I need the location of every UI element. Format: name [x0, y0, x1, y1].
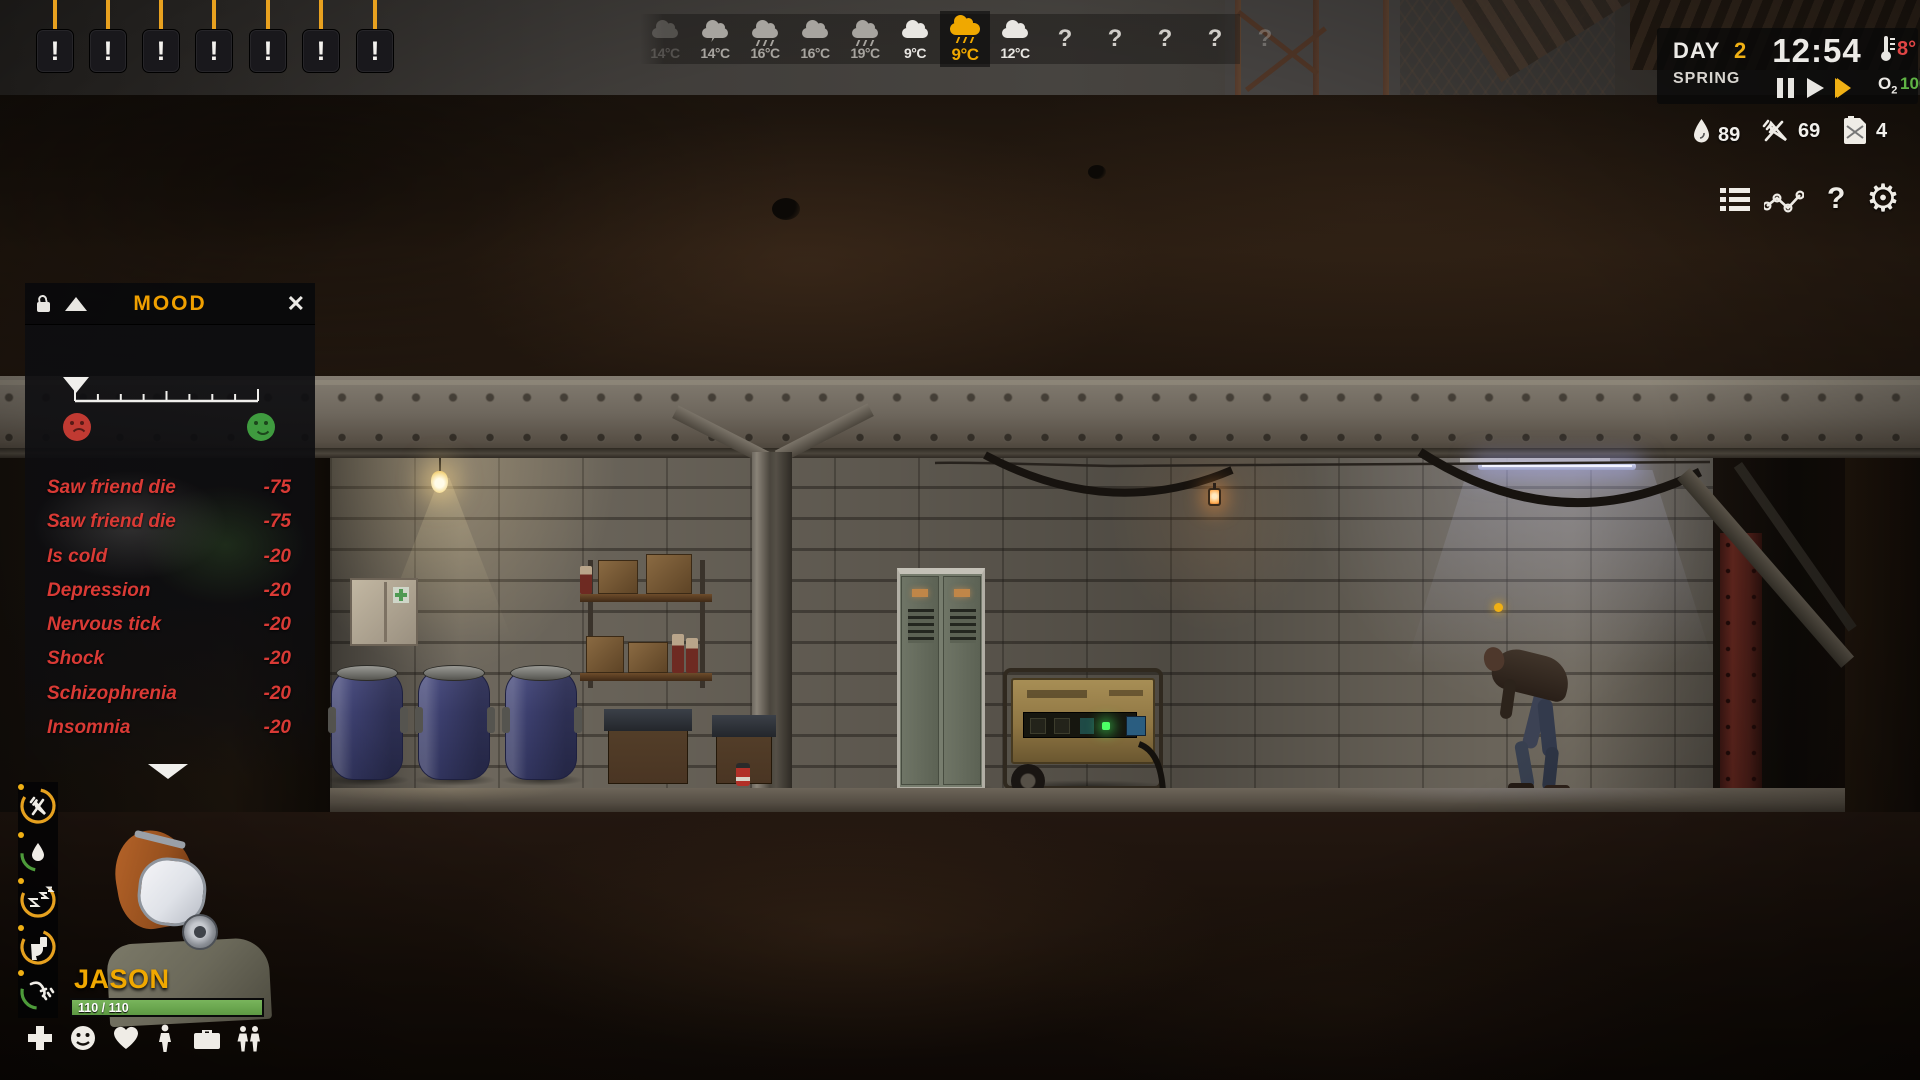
bulb-cord — [439, 458, 441, 472]
need-alert-dot — [18, 925, 24, 931]
weather-entry[interactable]: 19°C — [840, 14, 890, 64]
gas-mask-canister — [182, 914, 218, 950]
mood-item-label: Nervous tick — [47, 614, 161, 635]
cloud-icon — [902, 28, 928, 38]
need-hygiene[interactable] — [15, 969, 61, 1015]
water-barrel[interactable] — [331, 668, 403, 780]
medical-tab[interactable] — [26, 1024, 54, 1052]
water-drop-icon — [1692, 118, 1711, 144]
fork-knife-icon — [31, 798, 45, 814]
weather-entry[interactable]: 16°C — [740, 14, 790, 64]
zzz-icon — [30, 888, 52, 907]
cloud-icon — [1002, 28, 1028, 38]
mood-tab[interactable] — [69, 1024, 97, 1052]
health-value: 110 / 110 — [78, 1001, 129, 1015]
need-sleep[interactable] — [15, 877, 61, 923]
need-alert-dot — [18, 970, 24, 976]
game-screen: ! ! ! ! ! ! ! 14°C 14°C 16°C 16°C 19°C 9… — [0, 0, 1920, 1080]
fuel-resource[interactable]: 4 — [1840, 114, 1900, 154]
supply-jar[interactable] — [672, 634, 684, 673]
weather-temp: 14°C — [640, 45, 690, 61]
weather-temp: 9°C — [890, 45, 940, 61]
mood-item-label: Saw friend die — [47, 511, 176, 532]
mood-item-label: Insomnia — [47, 717, 130, 738]
mood-item: Depression-20 — [47, 580, 291, 608]
day-value: 2 — [1734, 38, 1746, 64]
weather-entry[interactable]: 9°C — [890, 14, 940, 64]
need-alert-dot — [18, 784, 24, 790]
character-tabs — [20, 1024, 280, 1056]
mood-panel-header[interactable]: MOOD ✕ — [25, 283, 315, 325]
mood-item: Insomnia-20 — [47, 717, 291, 745]
weather-entry-unknown[interactable]: ? — [1040, 14, 1090, 64]
alert-badge[interactable]: ! — [142, 0, 180, 73]
exclamation-icon[interactable]: ! — [89, 29, 127, 73]
health-tab[interactable] — [112, 1024, 140, 1052]
exclamation-icon[interactable]: ! — [142, 29, 180, 73]
season-label: SPRING — [1673, 70, 1740, 88]
rock-right — [1845, 458, 1920, 814]
need-alert-dot — [18, 832, 24, 838]
weather-entry-unknown[interactable]: ? — [1140, 14, 1190, 64]
red-column — [1720, 533, 1762, 790]
exclamation-icon[interactable]: ! — [302, 29, 340, 73]
crate-cloth — [712, 715, 776, 737]
cardboard-box[interactable] — [646, 554, 692, 594]
alert-badge[interactable]: ! — [89, 0, 127, 73]
mood-item: Nervous tick-20 — [47, 614, 291, 642]
water-barrel[interactable] — [505, 668, 577, 780]
weather-entry-unknown[interactable]: ? — [1240, 14, 1290, 64]
food-resource[interactable]: 69 — [1758, 114, 1828, 154]
cardboard-box[interactable] — [586, 636, 624, 673]
alert-line — [212, 0, 216, 30]
weather-entry[interactable]: 16°C — [790, 14, 840, 64]
food-count: 69 — [1798, 120, 1820, 143]
mood-item-value: -20 — [264, 683, 291, 705]
alert-line — [106, 0, 110, 30]
fast-forward-button[interactable] — [1835, 78, 1849, 98]
mood-item-value: -20 — [264, 614, 291, 636]
alert-line — [373, 0, 377, 30]
weather-temp: 14°C — [690, 45, 740, 61]
water-resource[interactable]: 89 — [1692, 118, 1752, 154]
weather-entry[interactable]: 14°C — [690, 14, 740, 64]
alert-line — [266, 0, 270, 30]
mood-item-label: Shock — [47, 648, 104, 669]
mood-item-value: -75 — [264, 477, 291, 499]
mood-panel: MOOD ✕ Saw friend die-75 Saw friend die- — [25, 283, 315, 777]
question-icon: ? — [1090, 14, 1140, 64]
mood-item-label: Schizophrenia — [47, 683, 177, 704]
rock-hole — [1088, 165, 1106, 179]
rain-cloud-icon — [752, 28, 778, 38]
hanging-lantern[interactable] — [1208, 488, 1221, 506]
question-icon: ? — [1040, 14, 1090, 64]
weather-entry-unknown[interactable]: ? — [1090, 14, 1140, 64]
oxygen-value: 100% — [1900, 74, 1920, 94]
water-barrel[interactable] — [418, 668, 490, 780]
medicine-cabinet[interactable] — [350, 578, 418, 646]
crate-cloth — [604, 709, 692, 731]
question-icon: ? — [1140, 14, 1190, 64]
need-alert-dot — [18, 878, 24, 884]
mood-panel-title: MOOD — [25, 292, 315, 316]
mood-item-label: Is cold — [47, 546, 107, 567]
exclamation-icon[interactable]: ! — [195, 29, 233, 73]
question-icon: ? — [1190, 14, 1240, 64]
alert-line — [319, 0, 323, 30]
fuel-count: 4 — [1876, 120, 1887, 143]
fork-knife-icon — [1758, 114, 1794, 148]
task-list-button[interactable] — [1720, 186, 1750, 219]
alert-badge[interactable]: ! — [36, 0, 74, 73]
water-count: 89 — [1718, 124, 1740, 147]
happy-face-icon — [247, 413, 275, 441]
weather-temp: 19°C — [840, 45, 890, 61]
list-icon — [1720, 186, 1750, 214]
mood-item-value: -75 — [264, 511, 291, 533]
locker-vents — [908, 609, 934, 643]
mood-item: Is cold-20 — [47, 546, 291, 574]
question-icon: ? — [1240, 14, 1290, 64]
weather-temp: 9°C — [940, 45, 990, 65]
alert-line — [53, 0, 57, 30]
mood-item: Saw friend die-75 — [47, 477, 291, 505]
scene-character[interactable] — [1470, 595, 1610, 795]
cabinet-divider — [384, 582, 387, 642]
rock-hole — [772, 198, 800, 220]
mood-slider-scale — [65, 385, 275, 417]
cloud-icon — [802, 28, 828, 38]
mood-item-value: -20 — [264, 717, 291, 739]
day-label: DAY — [1673, 38, 1720, 64]
generator-cable — [1133, 734, 1203, 794]
locker-door[interactable] — [943, 576, 981, 785]
weather-forecast-strip: 14°C 14°C 16°C 16°C 19°C 9°C 9°C 12°C ? … — [640, 14, 1240, 64]
shelf-board[interactable] — [580, 594, 712, 602]
water-drop-icon — [32, 843, 44, 861]
close-icon[interactable]: ✕ — [287, 291, 305, 317]
oxygen-label: O2 — [1878, 74, 1897, 96]
character-name: JASON — [74, 964, 170, 995]
shelf-bracket — [700, 560, 705, 688]
health-bar: 110 / 110 — [70, 998, 264, 1017]
shelf-board[interactable] — [580, 673, 712, 681]
scroll-down-arrow[interactable] — [148, 764, 188, 779]
mood-item-label: Depression — [47, 580, 150, 601]
supply-jar[interactable] — [580, 566, 592, 594]
rain-cloud-icon — [852, 28, 878, 38]
pause-button[interactable] — [1777, 78, 1794, 98]
mood-panel-body: Saw friend die-75 Saw friend die-75 Is c… — [25, 325, 315, 777]
exclamation-icon[interactable]: ! — [249, 29, 287, 73]
exclamation-icon[interactable]: ! — [36, 29, 74, 73]
alert-badge[interactable]: ! — [195, 0, 233, 73]
fluorescent-lamp[interactable] — [1478, 463, 1636, 470]
first-aid-cross-icon — [393, 587, 409, 603]
mood-item: Saw friend die-75 — [47, 511, 291, 539]
outside-temperature: 8° — [1897, 38, 1916, 61]
thermometer-icon — [1881, 36, 1891, 62]
mood-item-value: -20 — [264, 580, 291, 602]
cardboard-box[interactable] — [598, 560, 638, 594]
locker-door[interactable] — [901, 576, 939, 785]
weather-entry-current[interactable]: 9°C — [940, 11, 990, 67]
need-toilet[interactable] — [15, 924, 61, 970]
weather-entry[interactable]: 14°C — [640, 14, 690, 64]
rain-icon — [955, 37, 975, 44]
cloud-icon — [652, 28, 678, 38]
relationships-tab[interactable] — [233, 1024, 265, 1054]
inventory-tab[interactable] — [192, 1024, 222, 1052]
weather-entry-unknown[interactable]: ? — [1190, 14, 1240, 64]
weather-entry[interactable]: 12°C — [990, 14, 1040, 64]
needs-strip — [18, 782, 58, 1018]
rain-cloud-icon — [950, 23, 980, 35]
mood-item-label: Saw friend die — [47, 477, 176, 498]
need-food[interactable] — [15, 783, 61, 829]
weather-temp: 16°C — [790, 45, 840, 61]
mood-item-value: -20 — [264, 648, 291, 670]
graph-icon — [1764, 188, 1804, 214]
settings-button[interactable]: ⚙ — [1866, 180, 1900, 218]
alert-line — [159, 0, 163, 30]
play-button[interactable] — [1807, 78, 1824, 98]
locker-nameplate — [954, 589, 970, 597]
help-button[interactable]: ? — [1827, 182, 1845, 216]
stats-button[interactable] — [1764, 188, 1804, 219]
time-display: 12:54 — [1762, 32, 1872, 70]
alert-badge[interactable]: ! — [302, 0, 340, 73]
weather-temp: 12°C — [990, 45, 1040, 61]
shelter-floor — [330, 788, 1845, 814]
storage-crate[interactable] — [608, 716, 688, 784]
clock-panel: DAY 2 SPRING 12:54 8° O2 100% — [1657, 28, 1918, 104]
alert-badge[interactable]: ! — [249, 0, 287, 73]
locker-vents — [950, 609, 976, 643]
mood-item: Schizophrenia-20 — [47, 683, 291, 711]
light-bulb[interactable] — [431, 471, 448, 493]
alert-badge[interactable]: ! — [356, 0, 394, 73]
cardboard-box[interactable] — [628, 642, 668, 673]
exclamation-icon[interactable]: ! — [356, 29, 394, 73]
status-tab[interactable] — [153, 1024, 177, 1054]
sad-face-icon — [63, 413, 91, 441]
power-generator[interactable] — [1003, 668, 1163, 790]
jerrycan-icon — [1840, 114, 1870, 146]
mood-item-value: -20 — [264, 546, 291, 568]
mood-item: Shock-20 — [47, 648, 291, 676]
toilet-icon — [31, 937, 47, 960]
need-gauge-arc — [21, 975, 56, 1010]
character-marker-dot — [1494, 603, 1503, 612]
supply-jar[interactable] — [686, 638, 698, 673]
locker[interactable] — [897, 568, 985, 790]
weather-temp: 16°C — [740, 45, 790, 61]
small-red-can[interactable] — [736, 763, 750, 786]
locker-nameplate — [912, 589, 928, 597]
shower-icon — [31, 983, 53, 999]
need-water[interactable] — [15, 831, 61, 877]
